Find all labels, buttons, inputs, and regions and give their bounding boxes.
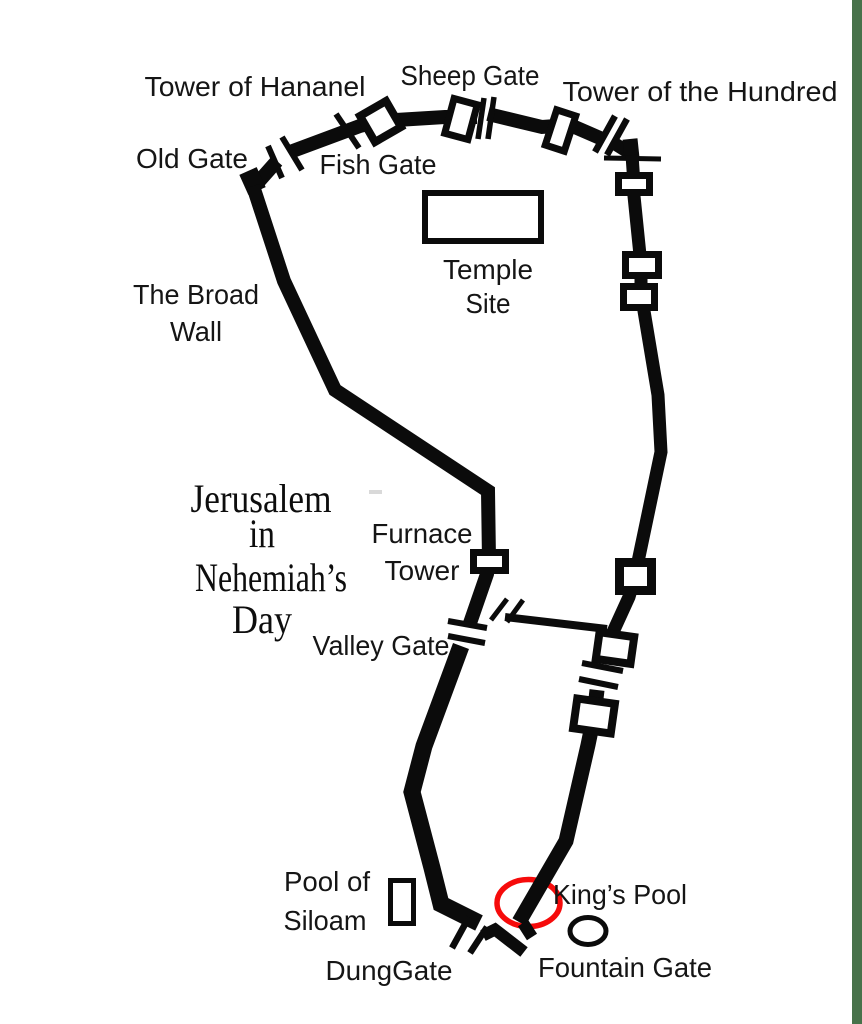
svg-text:Site: Site — [466, 288, 511, 319]
svg-text:DungGate: DungGate — [326, 955, 453, 986]
svg-text:Pool of: Pool of — [284, 866, 370, 897]
svg-text:Tower of Hananel: Tower of Hananel — [145, 71, 366, 102]
svg-text:Fountain Gate: Fountain Gate — [538, 952, 712, 983]
svg-text:Wall: Wall — [170, 316, 222, 347]
svg-text:The Broad: The Broad — [133, 279, 259, 310]
svg-text:Temple: Temple — [443, 254, 533, 285]
svg-text:Nehemiah’s: Nehemiah’s — [195, 555, 347, 600]
svg-text:Tower of the Hundred: Tower of the Hundred — [563, 76, 838, 107]
svg-text:Sheep Gate: Sheep Gate — [401, 60, 540, 91]
svg-text:Fish Gate: Fish Gate — [320, 149, 437, 180]
svg-text:Tower: Tower — [385, 555, 460, 586]
svg-text:King’s Pool: King’s Pool — [553, 879, 687, 910]
svg-text:in: in — [249, 511, 275, 556]
svg-text:Siloam: Siloam — [284, 905, 367, 936]
svg-text:Old Gate: Old Gate — [136, 143, 248, 174]
svg-text:Valley Gate: Valley Gate — [313, 630, 450, 661]
svg-text:Day: Day — [232, 597, 292, 642]
svg-text:Furnace: Furnace — [372, 518, 473, 549]
